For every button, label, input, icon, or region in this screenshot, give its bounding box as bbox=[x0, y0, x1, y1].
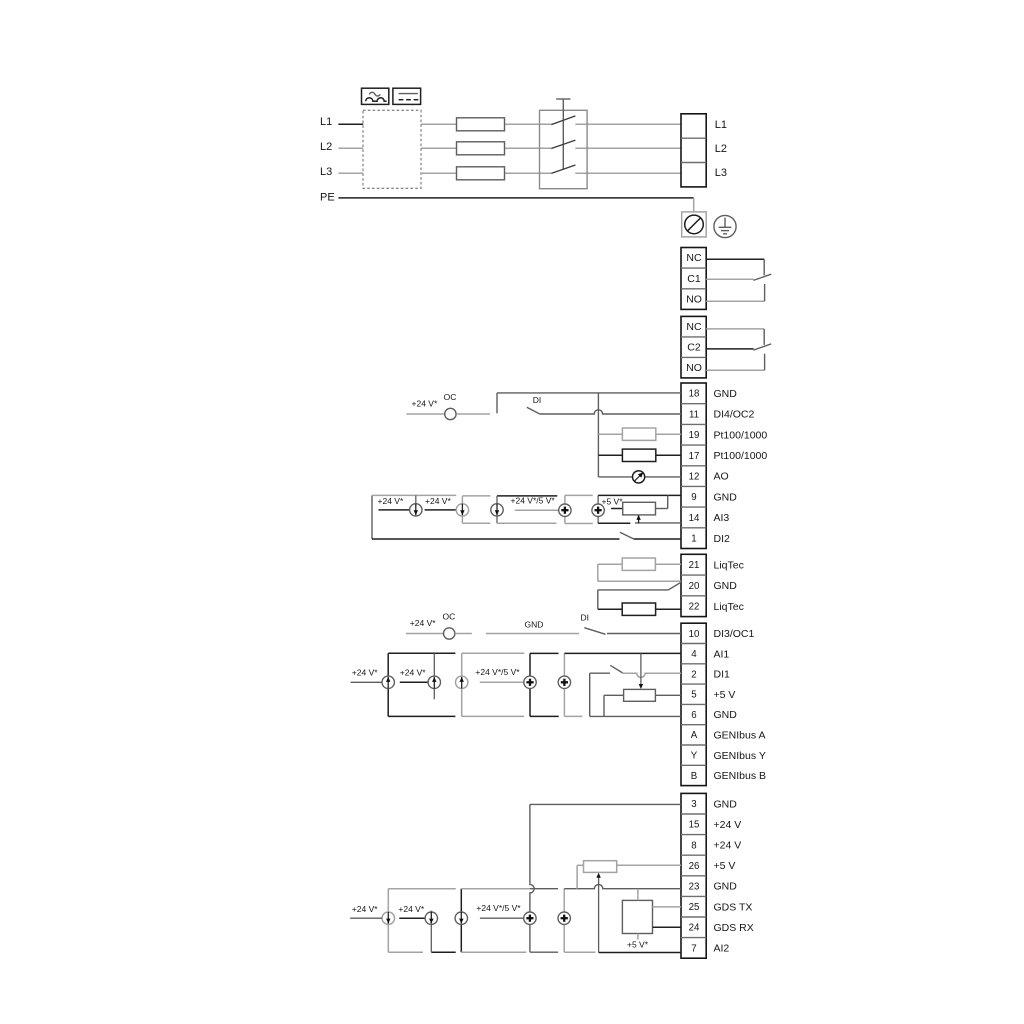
svg-text:+5 V: +5 V bbox=[714, 860, 736, 872]
svg-text:1: 1 bbox=[691, 534, 696, 545]
svg-text:LiqTec: LiqTec bbox=[714, 559, 744, 571]
svg-text:+24 V*: +24 V* bbox=[352, 668, 378, 678]
svg-text:AI3: AI3 bbox=[714, 512, 730, 524]
svg-text:AI2: AI2 bbox=[714, 943, 730, 955]
svg-text:L2: L2 bbox=[320, 141, 332, 153]
svg-text:GND: GND bbox=[714, 580, 738, 592]
svg-text:OC: OC bbox=[443, 611, 456, 621]
svg-text:GDS RX: GDS RX bbox=[714, 922, 754, 934]
svg-text:4: 4 bbox=[691, 649, 697, 660]
svg-text:+24 V*/5 V*: +24 V*/5 V* bbox=[511, 496, 556, 506]
svg-text:+24 V*: +24 V* bbox=[412, 399, 438, 409]
svg-text:19: 19 bbox=[689, 430, 700, 441]
svg-text:GND: GND bbox=[714, 388, 738, 400]
svg-text:+24 V*: +24 V* bbox=[398, 904, 424, 914]
svg-text:+24 V: +24 V bbox=[714, 819, 742, 831]
svg-text:+24 V*: +24 V* bbox=[410, 618, 436, 628]
svg-text:2: 2 bbox=[691, 669, 696, 680]
svg-text:10: 10 bbox=[689, 629, 700, 640]
svg-text:GND: GND bbox=[525, 620, 544, 630]
svg-text:DI3/OC1: DI3/OC1 bbox=[714, 628, 755, 640]
svg-text:NO: NO bbox=[686, 294, 702, 306]
svg-text:+24 V*: +24 V* bbox=[400, 668, 426, 678]
svg-text:14: 14 bbox=[689, 513, 700, 524]
svg-text:A: A bbox=[691, 730, 698, 741]
svg-text:+24 V*/5 V*: +24 V*/5 V* bbox=[476, 903, 521, 913]
svg-text:+24 V*: +24 V* bbox=[425, 496, 451, 506]
svg-text:C1: C1 bbox=[687, 273, 701, 285]
svg-text:LiqTec: LiqTec bbox=[714, 601, 744, 613]
svg-text:12: 12 bbox=[689, 472, 700, 483]
svg-text:DI2: DI2 bbox=[714, 533, 731, 545]
svg-text:DI1: DI1 bbox=[714, 669, 731, 681]
svg-text:OC: OC bbox=[444, 392, 457, 402]
svg-text:21: 21 bbox=[689, 560, 700, 571]
svg-text:DI4/OC2: DI4/OC2 bbox=[714, 409, 755, 421]
svg-text:L1: L1 bbox=[320, 116, 332, 128]
svg-text:AO: AO bbox=[714, 471, 729, 483]
svg-text:20: 20 bbox=[689, 581, 700, 592]
svg-text:PE: PE bbox=[320, 192, 335, 204]
svg-text:GENIbus A: GENIbus A bbox=[714, 730, 766, 742]
svg-text:26: 26 bbox=[689, 861, 700, 872]
svg-text:18: 18 bbox=[689, 389, 700, 400]
svg-text:17: 17 bbox=[689, 451, 700, 462]
svg-text:7: 7 bbox=[691, 943, 696, 954]
svg-text:L2: L2 bbox=[715, 143, 727, 155]
svg-text:AI1: AI1 bbox=[714, 648, 730, 660]
svg-text:GND: GND bbox=[714, 881, 738, 893]
svg-text:Y: Y bbox=[691, 751, 698, 762]
svg-text:C2: C2 bbox=[687, 342, 701, 354]
svg-text:+5 V*: +5 V* bbox=[627, 940, 649, 950]
svg-text:GENIbus Y: GENIbus Y bbox=[714, 750, 766, 762]
svg-text:L3: L3 bbox=[715, 167, 727, 179]
svg-text:NC: NC bbox=[686, 321, 702, 333]
svg-text:+5 V*: +5 V* bbox=[602, 497, 624, 507]
svg-text:8: 8 bbox=[691, 840, 696, 851]
svg-text:3: 3 bbox=[691, 799, 696, 810]
svg-text:DI: DI bbox=[533, 395, 542, 405]
svg-text:GND: GND bbox=[714, 491, 738, 503]
svg-text:+24 V: +24 V bbox=[714, 840, 742, 852]
svg-text:22: 22 bbox=[689, 602, 700, 613]
svg-text:NC: NC bbox=[686, 252, 702, 264]
svg-text:DI: DI bbox=[581, 613, 590, 623]
svg-text:GENIbus B: GENIbus B bbox=[714, 770, 767, 782]
svg-text:+24 V*/5 V*: +24 V*/5 V* bbox=[475, 667, 520, 677]
svg-text:GND: GND bbox=[714, 798, 738, 810]
svg-text:9: 9 bbox=[691, 492, 696, 503]
svg-text:Pt100/1000: Pt100/1000 bbox=[714, 450, 768, 462]
svg-text:25: 25 bbox=[689, 902, 700, 913]
svg-text:GDS TX: GDS TX bbox=[714, 901, 753, 913]
svg-text:24: 24 bbox=[689, 923, 700, 934]
svg-text:L1: L1 bbox=[715, 119, 727, 131]
svg-text:GND: GND bbox=[714, 709, 738, 721]
svg-text:+24 V*: +24 V* bbox=[378, 496, 404, 506]
svg-text:Pt100/1000: Pt100/1000 bbox=[714, 429, 768, 441]
svg-text:23: 23 bbox=[689, 882, 700, 893]
svg-text:15: 15 bbox=[689, 820, 700, 831]
svg-text:+5 V: +5 V bbox=[714, 689, 736, 701]
svg-text:NO: NO bbox=[686, 362, 702, 374]
svg-text:L3: L3 bbox=[320, 166, 332, 178]
svg-text:6: 6 bbox=[691, 710, 696, 721]
svg-text:11: 11 bbox=[689, 409, 699, 420]
svg-text:B: B bbox=[691, 771, 697, 782]
svg-text:5: 5 bbox=[691, 690, 696, 701]
svg-text:+24 V*: +24 V* bbox=[352, 904, 378, 914]
